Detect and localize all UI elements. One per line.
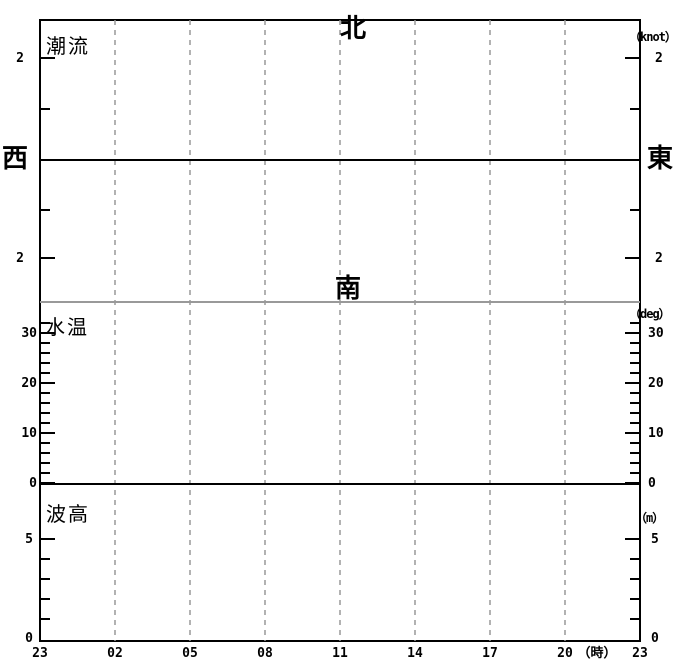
y-tick-label-left: 2 [16, 251, 24, 266]
y-tick-label-right: 2 [655, 251, 663, 266]
y-tick-label-right: 20 [648, 376, 664, 391]
current-unit-label: （knot） [629, 28, 676, 45]
y-tick-label-left: 0 [25, 631, 33, 646]
current-panel-label: 潮流 [46, 30, 90, 59]
y-tick-label-right: 2 [655, 51, 663, 66]
y-tick-label-left: 2 [16, 51, 24, 66]
south-label: 南 [335, 275, 361, 303]
x-tick-label: 23 [632, 646, 648, 660]
west-label: 西 [2, 145, 28, 173]
x-tick-label: 05 [182, 646, 198, 660]
east-label: 東 [647, 145, 673, 173]
wave-panel-label: 波高 [46, 498, 90, 527]
y-tick-label-left: 0 [29, 476, 37, 491]
north-label: 北 [340, 15, 366, 43]
y-tick-label-right: 0 [648, 476, 656, 491]
temperature-unit-label: （deg） [629, 305, 670, 322]
chart-canvas: 2222303020201010005500230205081114172023… [0, 0, 680, 660]
x-axis-unit-label: （時） [577, 645, 616, 660]
x-tick-label: 08 [257, 646, 273, 660]
wave-unit-label: （m） [635, 509, 663, 526]
x-tick-label: 14 [407, 646, 423, 660]
y-tick-label-left: 30 [21, 326, 37, 341]
x-tick-label: 02 [107, 646, 123, 660]
x-tick-label: 11 [332, 646, 348, 660]
y-tick-label-right: 10 [648, 426, 664, 441]
x-tick-label: 20 [557, 646, 573, 660]
y-tick-label-right: 30 [648, 326, 664, 341]
tide-current-chart: 2222303020201010005500230205081114172023… [0, 0, 680, 660]
y-tick-label-right: 0 [651, 631, 659, 646]
y-tick-label-left: 20 [21, 376, 37, 391]
x-tick-label: 17 [482, 646, 498, 660]
temperature-panel-label: 水温 [45, 311, 89, 340]
y-tick-label-left: 10 [21, 426, 37, 441]
x-tick-label: 23 [32, 646, 48, 660]
y-tick-label-left: 5 [25, 532, 33, 547]
y-tick-label-right: 5 [651, 532, 659, 547]
